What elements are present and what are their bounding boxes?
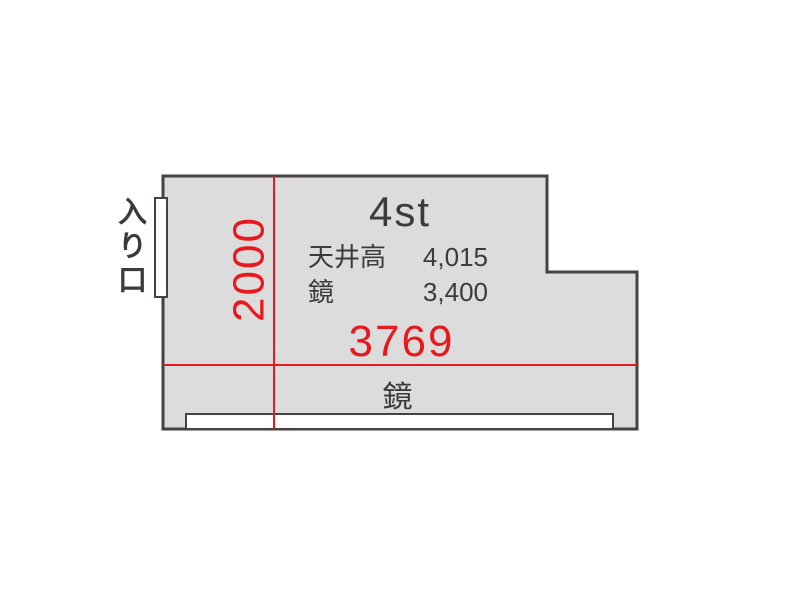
floorplan-canvas: 入り口 4st 天井高 4,015 鏡 3,400 3769 2000 鏡 bbox=[0, 0, 800, 600]
width-dimension-value: 3769 bbox=[320, 320, 483, 364]
spec-row-ceiling: 天井高 4,015 bbox=[308, 240, 488, 275]
spec-label: 天井高 bbox=[308, 240, 386, 275]
room-specs: 天井高 4,015 鏡 3,400 bbox=[308, 240, 488, 310]
spec-value: 4,015 bbox=[423, 240, 488, 275]
height-dimension-value: 2000 bbox=[228, 200, 272, 339]
entrance-door bbox=[155, 198, 167, 297]
spec-value: 3,400 bbox=[423, 275, 488, 310]
entrance-label: 入り口 bbox=[116, 196, 149, 298]
spec-label: 鏡 bbox=[308, 275, 334, 310]
mirror-bar bbox=[186, 414, 613, 429]
spec-row-mirror: 鏡 3,400 bbox=[308, 275, 488, 310]
room-title: 4st bbox=[330, 191, 470, 233]
mirror-label: 鏡 bbox=[366, 380, 429, 416]
